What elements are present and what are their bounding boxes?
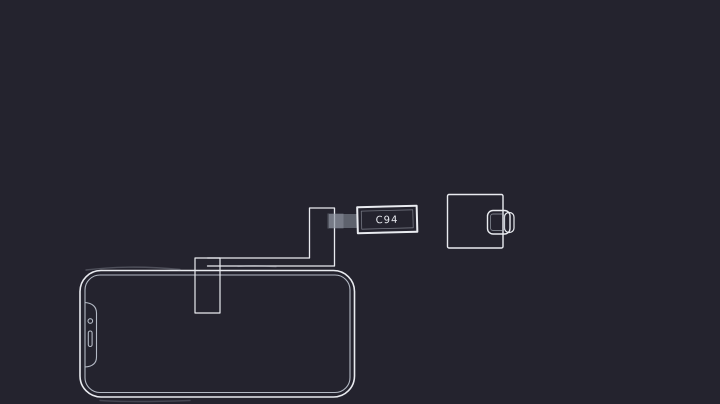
c94-connector-label: C94: [376, 215, 399, 227]
illustration-stage: C94: [0, 0, 720, 404]
diagram-canvas: C94: [0, 0, 720, 404]
background: [0, 0, 720, 404]
